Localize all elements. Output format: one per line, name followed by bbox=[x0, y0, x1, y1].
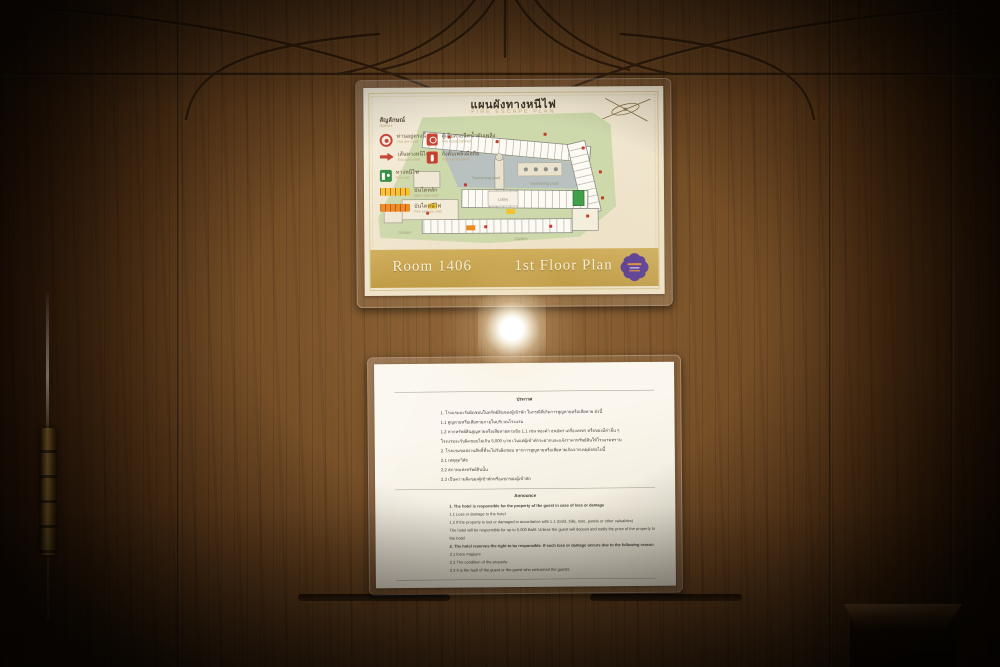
door-edge-light bbox=[46, 292, 49, 432]
door-hinge bbox=[40, 428, 57, 555]
thai-line: 2.3 เป็นความผิดของผู้เข้าพักหรือแขกของผู… bbox=[441, 473, 655, 484]
announcement-sleeve: ประกาศ 1. โรงแรมจะรับผิดชอบในทรัพย์สินขอ… bbox=[367, 355, 683, 596]
legend-item-extinguisher: ถังดับเพลิงมือถือ Fire extinguisher bbox=[427, 151, 480, 163]
door-panel-seam-right bbox=[829, 0, 832, 667]
main-staircase-marker bbox=[380, 188, 410, 196]
door-edge-shadow bbox=[47, 556, 49, 620]
door-frame-base bbox=[850, 604, 956, 667]
highlighted-room bbox=[573, 191, 584, 206]
divider bbox=[394, 390, 654, 393]
announcement-document: ประกาศ 1. โรงแรมจะรับผิดชอบในทรัพย์สินขอ… bbox=[374, 362, 676, 589]
fire-escape-plan-sleeve: แผนผังทางหนีไฟ FIRE ESCAPE PLAN bbox=[355, 78, 673, 308]
legend-item-fire-stair: บันไดหนีไฟ Fire escape stair bbox=[380, 204, 442, 215]
garden-label-2: Garden bbox=[514, 236, 527, 241]
announcement-heading-thai: ประกาศ bbox=[394, 394, 654, 403]
english-line: 2.3 It is the fault of the guest or the … bbox=[450, 565, 656, 575]
door-frame-base-cap bbox=[844, 604, 962, 628]
legend-sublabel: Fire exit bbox=[396, 176, 419, 181]
legend-heading-english: Symbol bbox=[380, 124, 406, 129]
building-block-se bbox=[572, 208, 598, 230]
divider bbox=[396, 578, 656, 581]
legend-item-you-are-here: ท่านอยู่ตรงนี้ You are here bbox=[380, 134, 426, 147]
floor-plan-label: 1st Floor Plan bbox=[514, 257, 612, 275]
legend-sublabel: Main staircase bbox=[414, 194, 439, 199]
you-are-here-icon bbox=[380, 134, 393, 147]
legend: สัญลักษณ์ Symbol ท่านอยู่ตรงนี้ You are … bbox=[377, 117, 538, 218]
legend-sublabel: Fire extinguisher bbox=[442, 157, 479, 162]
fire-hose-cabinet-icon bbox=[427, 134, 438, 146]
legend-sublabel: Fire escape stair bbox=[414, 210, 442, 215]
door-frame-seam bbox=[951, 0, 954, 667]
legend-heading: สัญลักษณ์ Symbol bbox=[379, 118, 405, 129]
legend-item-fire-hose: ตู้เก็บสายฉีดน้ำดับเพลิง Fire hose cabin… bbox=[427, 133, 496, 145]
fire-extinguisher-icon bbox=[427, 152, 438, 164]
fire-exit-icon bbox=[380, 170, 392, 182]
plan-footer-bar: Room 1406 1st Floor Plan bbox=[370, 248, 658, 288]
escape-route-arrow-icon bbox=[380, 153, 394, 161]
fire-escape-plan-document: แผนผังทางหนีไฟ FIRE ESCAPE PLAN bbox=[363, 86, 664, 296]
hotel-logo bbox=[619, 252, 649, 282]
legend-sublabel: Fire hose cabinet bbox=[442, 139, 496, 144]
legend-item-main-stair: บันไดหลัก Main staircase bbox=[380, 188, 439, 199]
announcement-heading-english: Announce bbox=[395, 492, 655, 499]
garden-label-1: Garden bbox=[398, 230, 411, 235]
divider bbox=[395, 487, 655, 490]
fire-staircase-marker bbox=[380, 204, 410, 212]
announcement-content: ประกาศ 1. โรงแรมจะรับผิดชอบในทรัพย์สินขอ… bbox=[374, 362, 676, 589]
legend-item-escape-route: เส้นทางหนีไฟ Escape route bbox=[380, 152, 430, 163]
door-groove-right bbox=[590, 594, 742, 601]
english-line: The hotel will be responsible for up to … bbox=[449, 525, 655, 543]
legend-item-fire-exit: ทางหนีไฟ Fire exit bbox=[380, 170, 419, 182]
legend-sublabel: You are here bbox=[397, 140, 426, 145]
hotel-door-photo: แผนผังทางหนีไฟ FIRE ESCAPE PLAN bbox=[0, 0, 1000, 667]
room-number: Room 1406 bbox=[392, 258, 472, 276]
legend-sublabel: Escape route bbox=[398, 158, 430, 163]
door-panel-seam-left bbox=[177, 0, 180, 667]
